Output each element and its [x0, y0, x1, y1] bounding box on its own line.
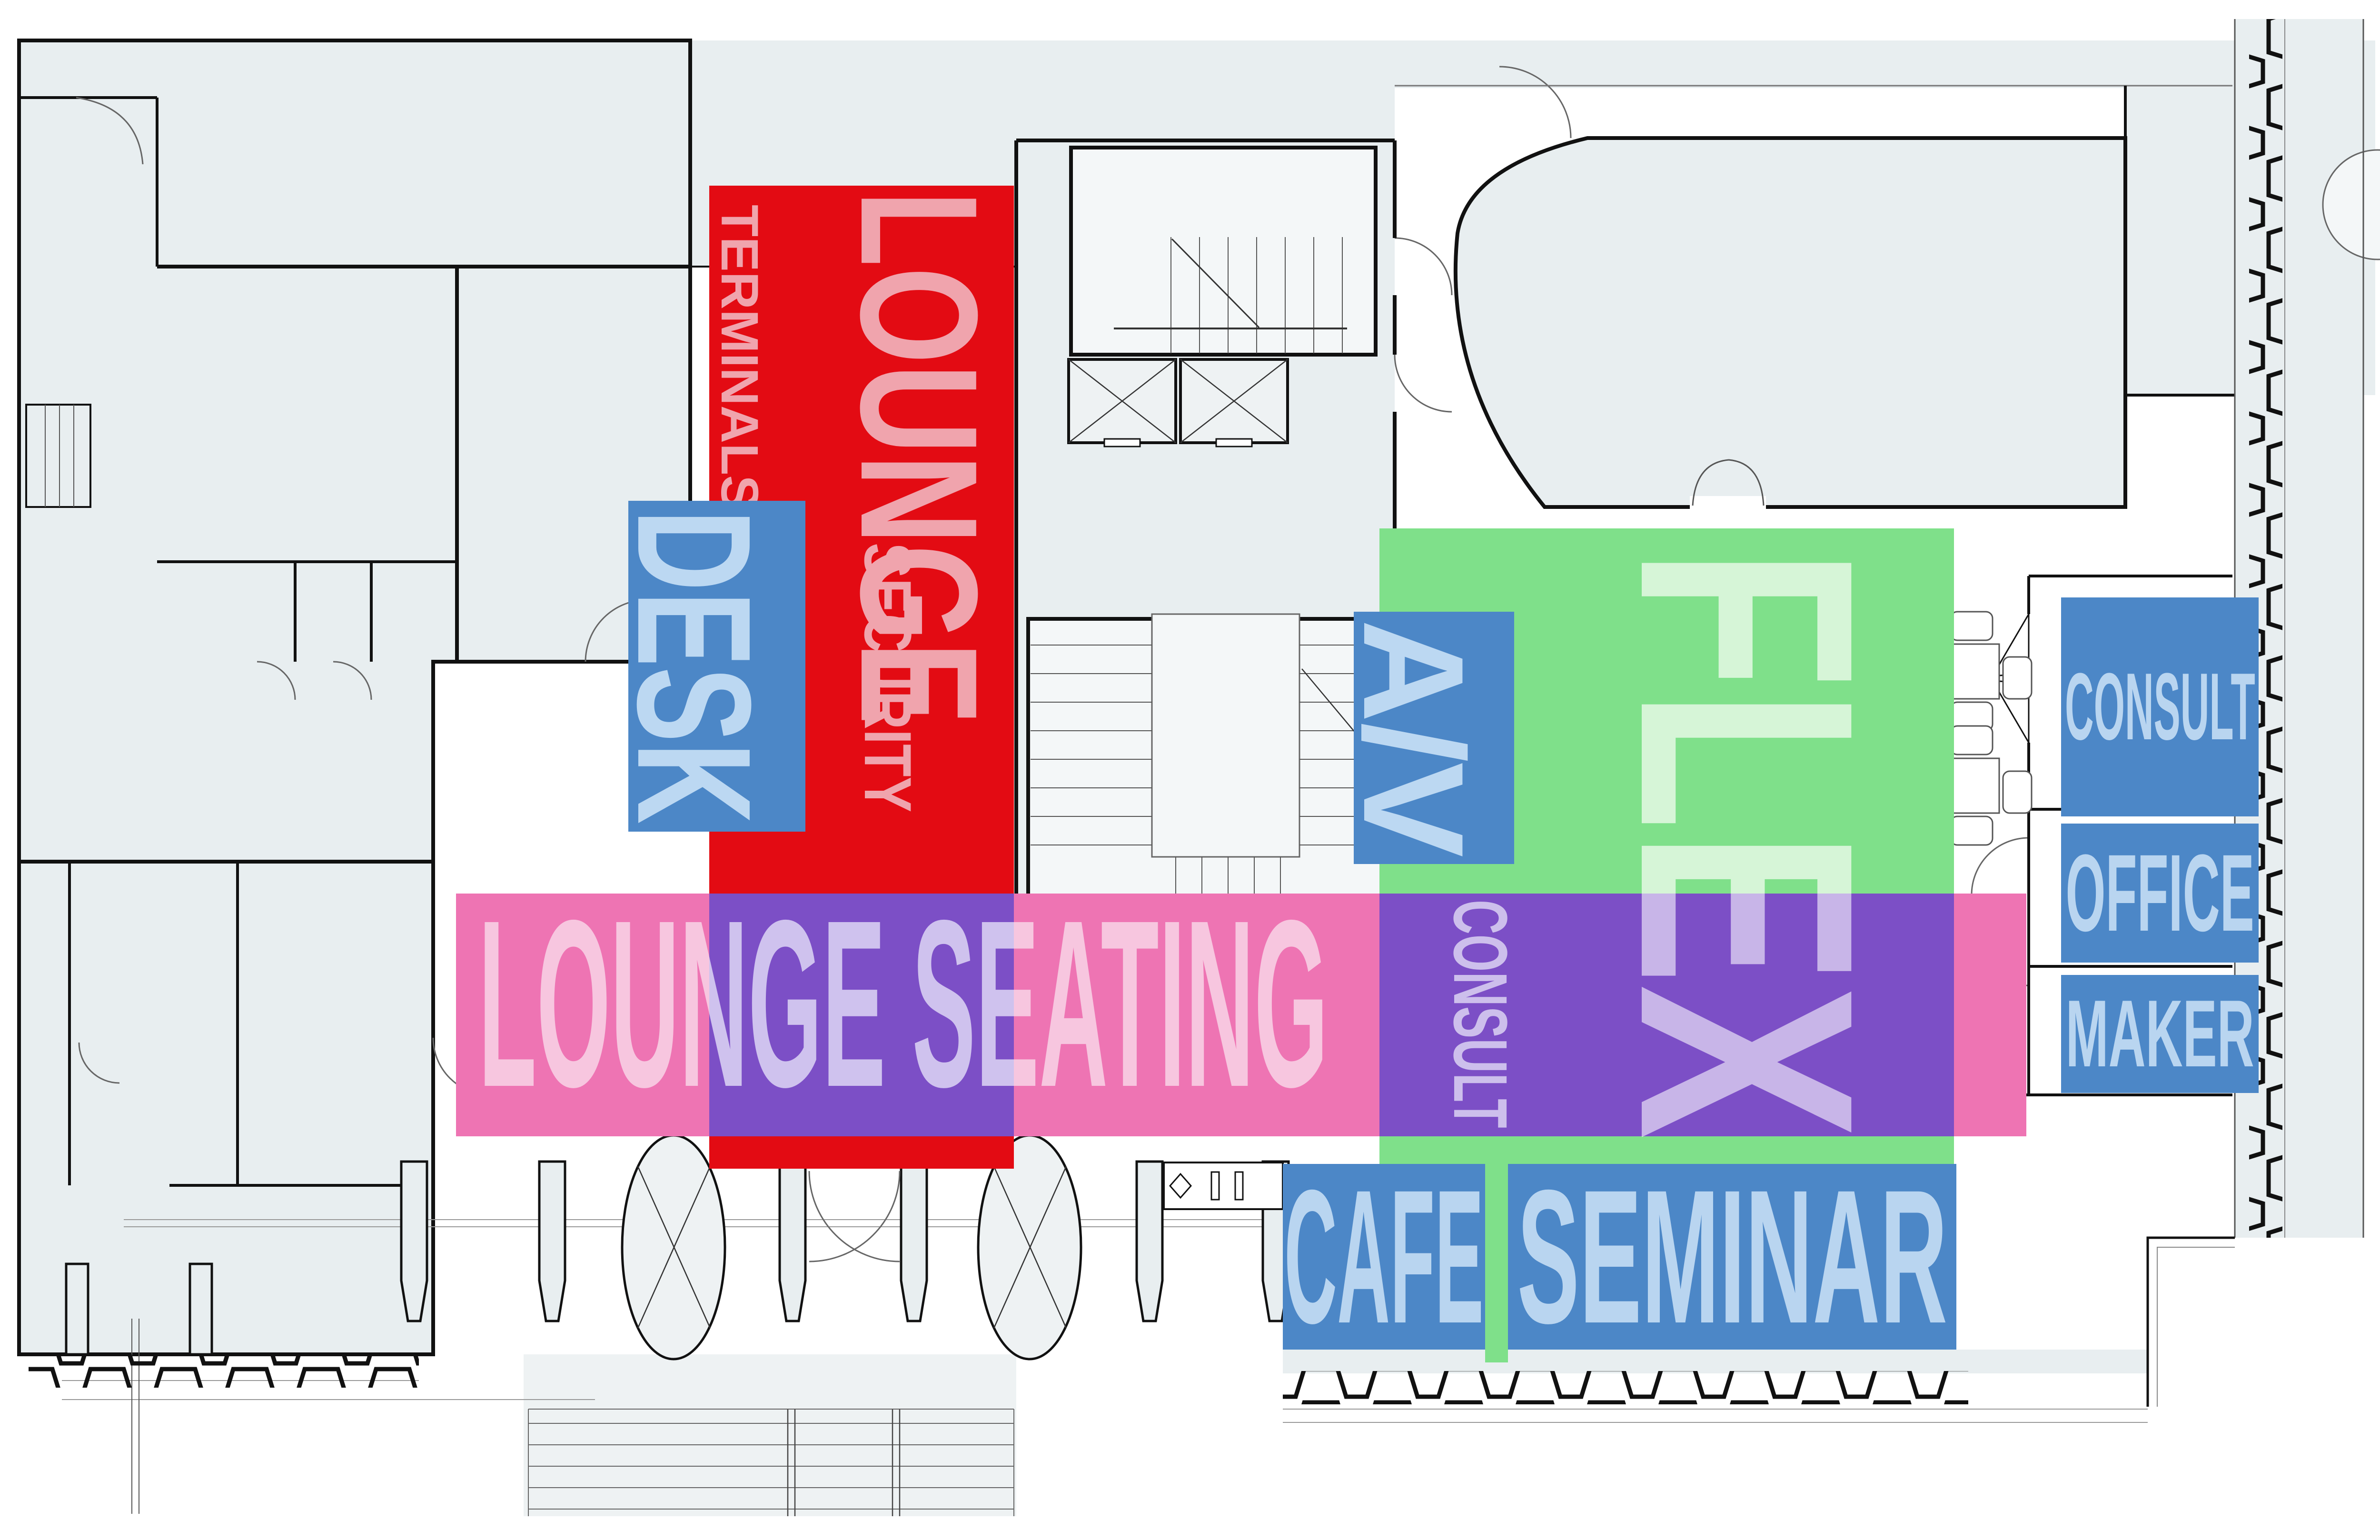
overlap-seating-flex: FLEX CONSULT [1379, 894, 1954, 1136]
zone-label-lounge-seating-overlap: LOUNGE SEATING [709, 894, 1014, 1123]
zone-cafe: CAFE [1283, 1164, 1485, 1350]
floor-plan-linework [0, 0, 2380, 1540]
overlap-seating-lounge: LOUNGE SEATING [709, 894, 1014, 1136]
zone-office: OFFICE [2061, 824, 2259, 963]
zone-label-desk: DESK [613, 509, 775, 824]
table-chairs-icon [1944, 612, 2032, 845]
zone-label-office: OFFICE [2065, 838, 2254, 948]
zone-flex-strip [1485, 1136, 1508, 1362]
zone-label-seminar: SEMINAR [1517, 1162, 1947, 1352]
zone-label-consult-zone: CONSULT [1442, 900, 1518, 1128]
zone-label-terminals: TERMINALS [713, 205, 765, 510]
zone-label-av: A/V [1342, 619, 1485, 857]
zone-label-cafe: CAFE [1284, 1162, 1484, 1352]
zone-maker: MAKER [2061, 975, 2259, 1093]
floor-plan-diagram: LOUNGE SEATING LOUNGE TERMINALS SECURITY… [0, 0, 2380, 1540]
zone-seminar: SEMINAR [1508, 1164, 1956, 1350]
zone-label-security: SECURITY [854, 543, 921, 812]
zone-label-maker: MAKER [2066, 986, 2254, 1082]
zone-consult-room: CONSULT [2061, 597, 2259, 816]
security-gate-icon [1164, 1162, 1283, 1209]
zone-label-flex-overlap: FLEX [1595, 894, 1899, 1136]
pilaster-icon [401, 1162, 1289, 1321]
zone-av: A/V [1354, 612, 1514, 864]
zone-label-consult-room: CONSULT [2065, 659, 2255, 755]
zone-desk: DESK [628, 501, 805, 832]
entry-door-arcs [809, 1171, 900, 1262]
